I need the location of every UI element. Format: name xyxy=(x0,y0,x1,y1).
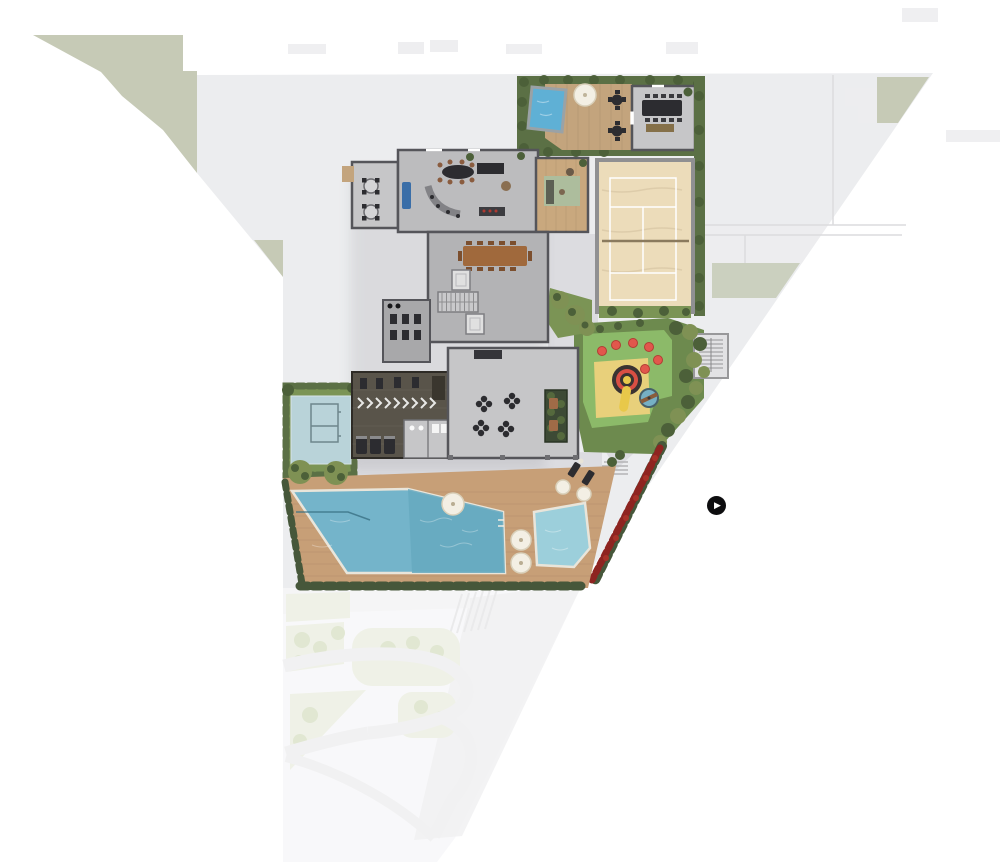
sofa xyxy=(546,180,554,204)
armchair xyxy=(501,181,511,191)
play-icon: ▶ xyxy=(714,501,721,510)
deck-umbrella xyxy=(442,493,464,515)
counter xyxy=(474,350,502,359)
oval-table xyxy=(442,165,474,179)
treadmills xyxy=(356,436,395,454)
seesaw xyxy=(640,389,658,407)
court-sand xyxy=(599,162,691,310)
gym xyxy=(352,372,449,458)
east-hedge-strip xyxy=(694,76,705,316)
round-daybed xyxy=(556,480,570,494)
deck-tree xyxy=(324,461,348,485)
coffee-table xyxy=(559,189,565,195)
deck-tree xyxy=(288,460,312,484)
card-table xyxy=(362,178,380,195)
beach-tennis-court xyxy=(595,158,695,318)
play-button[interactable]: ▶ xyxy=(707,496,726,515)
plant xyxy=(579,159,587,167)
armchair xyxy=(566,168,574,176)
kids-pool xyxy=(534,503,590,567)
elevator xyxy=(466,314,484,334)
plant xyxy=(517,152,525,160)
sideboard xyxy=(646,124,674,132)
plant xyxy=(466,153,474,161)
planter-seating xyxy=(545,390,567,442)
round-daybed xyxy=(577,487,591,501)
service-block xyxy=(383,300,430,362)
changing-rooms xyxy=(404,420,448,458)
deck-umbrella xyxy=(511,530,531,550)
balcony xyxy=(342,166,354,182)
spa-pool xyxy=(528,87,566,132)
elevator xyxy=(452,270,470,290)
gourmet-table xyxy=(463,246,527,266)
stairwell xyxy=(438,292,478,312)
plant xyxy=(684,88,693,97)
garden-umbrella xyxy=(574,84,596,106)
site-plan-rendering xyxy=(0,0,1000,862)
bush xyxy=(607,457,617,467)
bush xyxy=(615,450,625,460)
card-table xyxy=(362,204,380,221)
deck-umbrella xyxy=(511,553,531,573)
main-lounge xyxy=(398,149,538,232)
dining-table xyxy=(642,100,682,116)
rooftop-garden xyxy=(517,75,704,157)
party-room xyxy=(631,85,695,150)
sofa xyxy=(402,182,411,209)
sport-court xyxy=(291,396,351,464)
media-cabinet xyxy=(477,163,504,174)
core xyxy=(428,232,548,342)
tv-room xyxy=(536,158,588,232)
